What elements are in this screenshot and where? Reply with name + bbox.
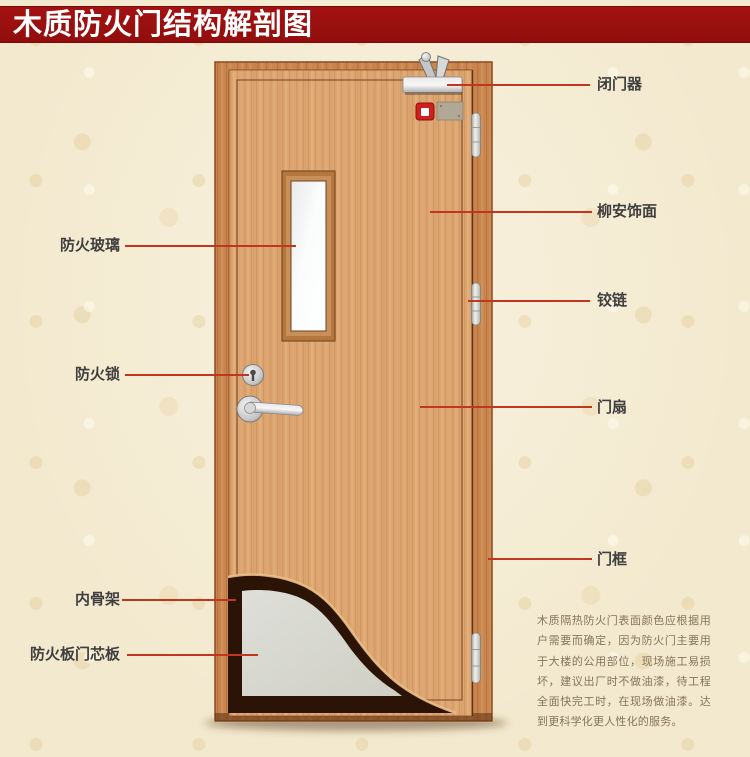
page: 木质防火门结构解剖图 — [0, 0, 750, 757]
label-core-board: 防火板门芯板 — [30, 646, 120, 664]
leader-fire-lock — [125, 374, 249, 376]
hinge-middle — [472, 283, 481, 325]
label-fire-glass: 防火玻璃 — [60, 237, 120, 255]
leader-veneer — [430, 211, 592, 213]
label-door-frame: 门框 — [597, 551, 627, 569]
fire-glass-window — [282, 171, 335, 341]
leader-fire-glass — [125, 245, 296, 247]
leader-hinge — [468, 300, 590, 302]
label-hinge: 铰链 — [597, 292, 627, 310]
leader-door-closer — [447, 84, 590, 86]
leader-inner-skeleton — [122, 599, 236, 601]
access-plate — [437, 102, 463, 120]
label-door-leaf: 门扇 — [597, 399, 627, 417]
leader-door-leaf — [420, 406, 592, 408]
leader-door-frame — [488, 558, 592, 560]
label-veneer: 柳安饰面 — [597, 203, 657, 221]
hinge-bottom — [472, 633, 481, 683]
leader-core-board — [127, 654, 258, 656]
hinge-top — [472, 113, 481, 157]
label-inner-skeleton: 内骨架 — [75, 591, 120, 609]
label-door-closer: 闭门器 — [597, 76, 642, 94]
description-text: 木质隔热防火门表面颜色应根据用户需要而确定，因为防火门主要用于大楼的公用部位，现… — [537, 611, 711, 733]
alarm-indicator — [416, 103, 434, 120]
label-fire-lock: 防火锁 — [75, 366, 120, 384]
